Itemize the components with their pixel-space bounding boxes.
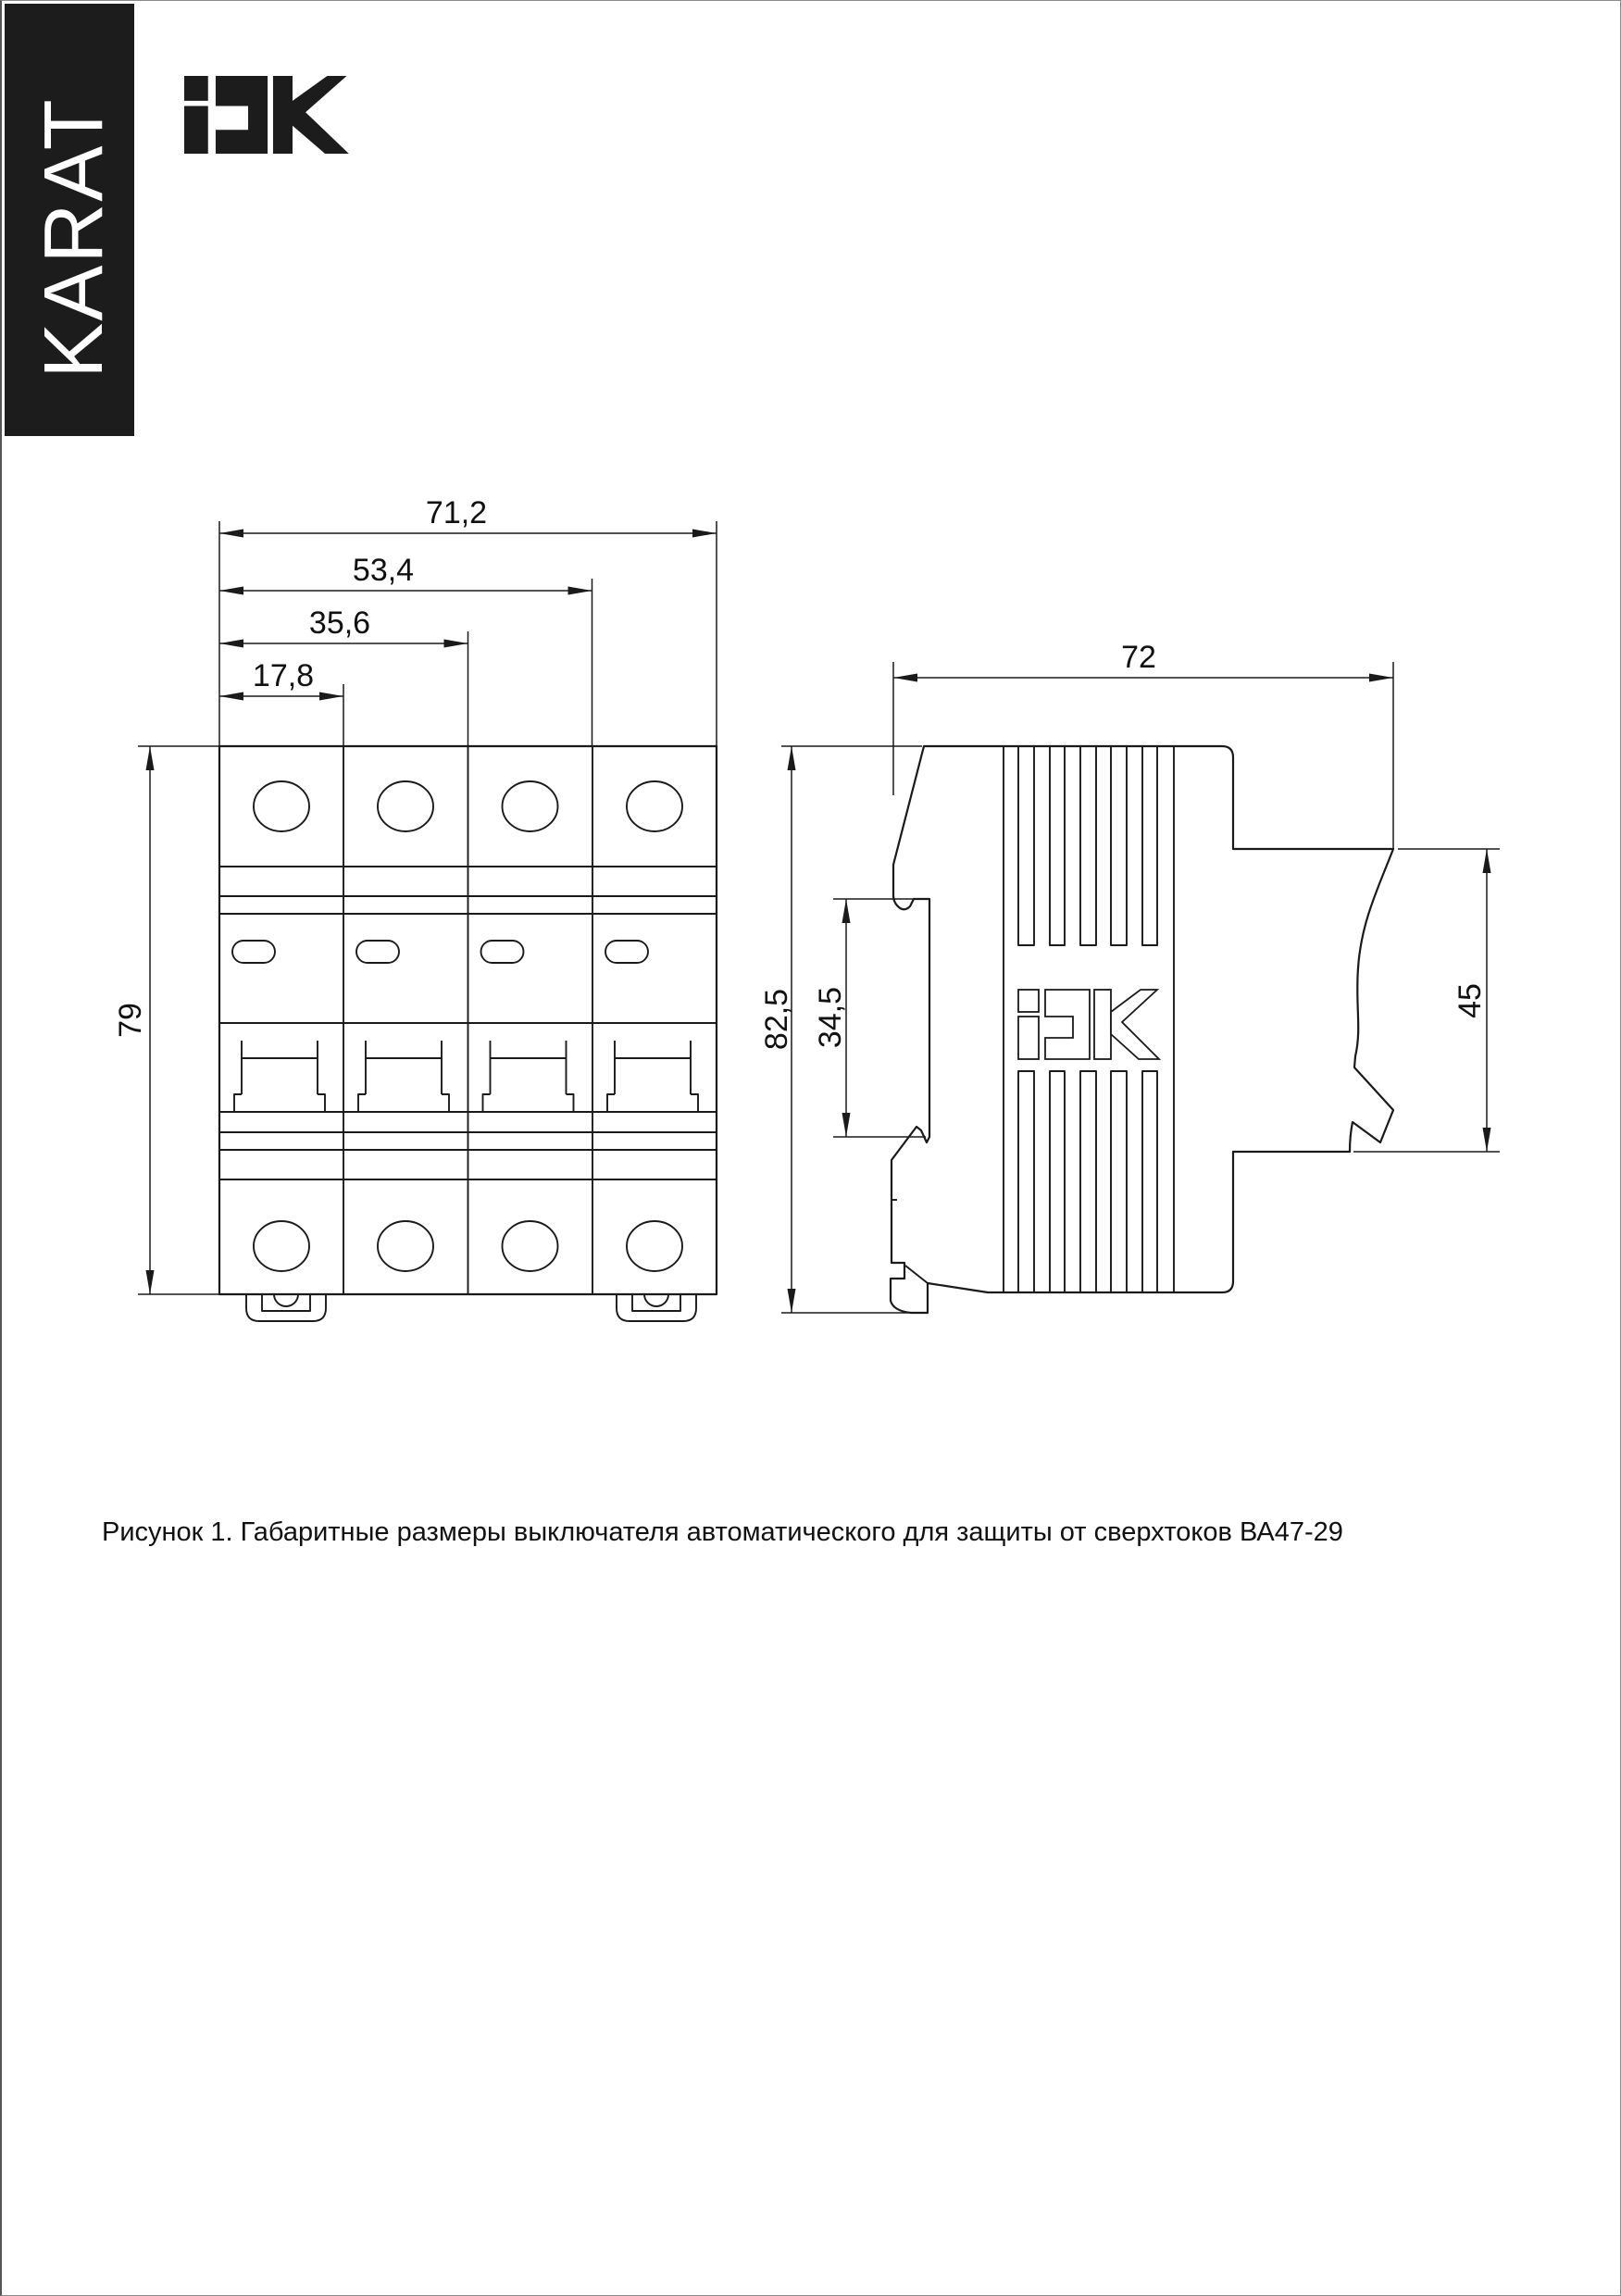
dim-label-35-6: 35,6 (309, 605, 370, 641)
front-section-lines (219, 867, 717, 1179)
dim-width-total: 71,2 (219, 495, 717, 538)
side-dimensions: 72 82,5 34,5 (759, 640, 1500, 1313)
indicator-slots (232, 941, 648, 963)
dim-width-2mod: 35,6 (219, 605, 468, 648)
toggle-levers (234, 1041, 698, 1112)
front-view: 71,2 53,4 35,6 17,8 (113, 495, 717, 1321)
dim-width-3mod: 53,4 (219, 553, 592, 595)
dim-label-82-5: 82,5 (759, 989, 794, 1050)
front-view-body (219, 746, 717, 1321)
din-clip-right (617, 1294, 696, 1321)
page: KARAT 71,2 (0, 0, 1621, 2296)
dim-din-34-5: 34,5 (813, 899, 926, 1137)
dim-label-53-4: 53,4 (353, 553, 414, 588)
dim-label-17-8: 17,8 (253, 658, 314, 693)
dim-label-72: 72 (1121, 640, 1156, 675)
dim-depth-72: 72 (893, 640, 1393, 849)
brand-text: KARAT (28, 97, 120, 378)
iek-logo (184, 76, 349, 154)
dim-height-79: 79 (113, 746, 155, 1294)
vent-slots-upper (1018, 747, 1157, 945)
side-view: 72 82,5 34,5 (759, 640, 1500, 1313)
dim-label-34-5: 34,5 (813, 987, 848, 1048)
dim-width-1mod: 17,8 (219, 658, 343, 701)
front-dimensions: 71,2 53,4 35,6 17,8 (113, 495, 717, 1294)
side-view-body (891, 746, 1393, 1313)
brand-block: KARAT (5, 4, 134, 436)
figure-caption: Рисунок 1. Габаритные размеры выключател… (102, 1517, 1343, 1547)
din-clip-left (246, 1294, 326, 1321)
side-iek-logo (1018, 990, 1159, 1059)
vent-slots-lower (1018, 1071, 1157, 1291)
dim-label-79: 79 (113, 1003, 148, 1038)
dim-label-71-2: 71,2 (426, 495, 487, 530)
dim-label-45: 45 (1453, 983, 1488, 1018)
